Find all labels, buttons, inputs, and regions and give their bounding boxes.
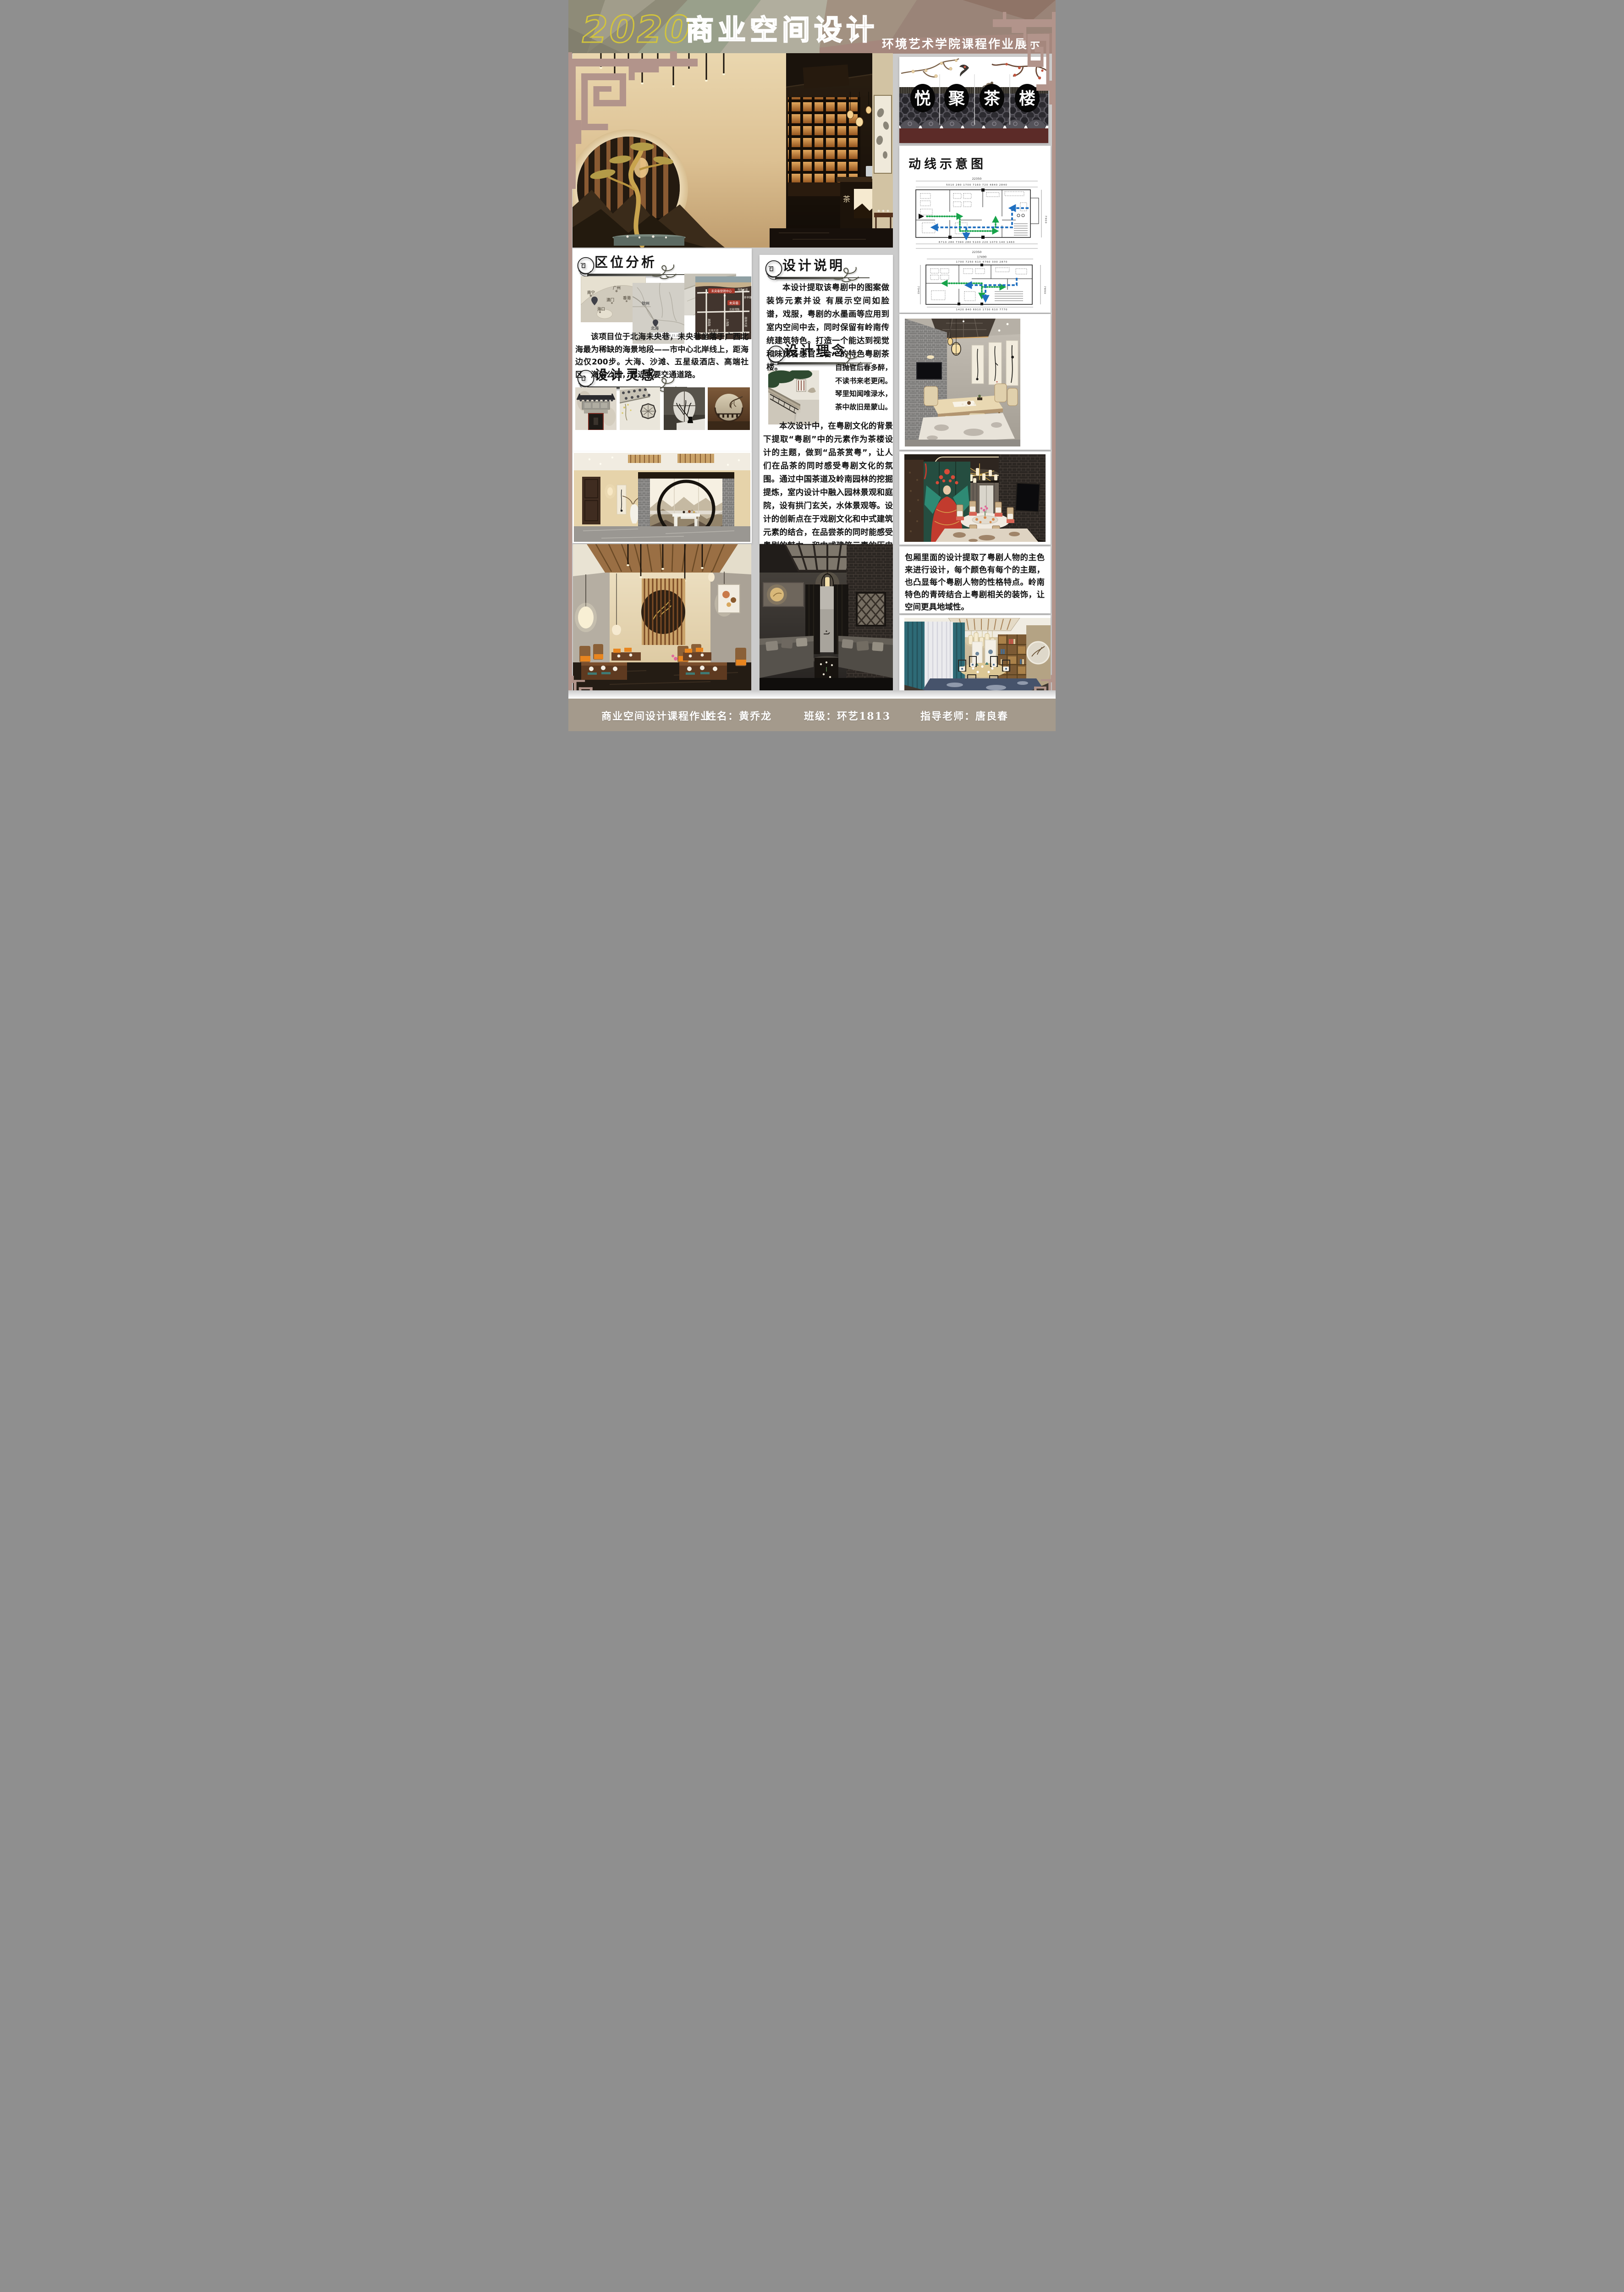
map1-label-guangzhou: 广州 <box>613 286 621 291</box>
lintel <box>638 472 734 479</box>
footer-bar: 商业空间设计课程作业 姓名：黄乔龙 班级：环艺1813 指导老师：唐良春 <box>568 699 1056 731</box>
entry-arrow <box>919 214 924 219</box>
lattice-window <box>857 593 885 626</box>
map4-label-sales-center: 未央巷营销中心 <box>711 289 732 293</box>
footer-glow-band <box>568 690 1056 699</box>
flourish-icon <box>651 263 677 280</box>
marble-floor <box>574 526 750 542</box>
year-title: 2020 <box>582 8 692 51</box>
desk-tea-character: 茶 <box>843 195 850 204</box>
section-design-description: 设计说明 <box>763 255 887 285</box>
map2-label-qinzhou: 钦州 <box>642 301 650 306</box>
map4-road-haijing: 海景大道 <box>738 288 748 292</box>
poem-line: 不读书来老更闲。 <box>835 375 895 388</box>
section-title-location: 区位分析 <box>595 252 657 271</box>
map4-road-shanghai: 上海路 <box>726 319 729 326</box>
concept-garden-photo <box>768 370 819 424</box>
map1-label-macau: 澳门 <box>606 298 614 303</box>
poem-line: 自抛官后春多醉， <box>835 361 895 375</box>
inspiration-moon-gate-photo <box>708 387 750 430</box>
footer-teacher: 指导老师：唐良春 <box>920 708 1008 723</box>
render-moon-arch-hallway <box>574 453 750 542</box>
plan1-dims-bottom: 6710 280 7390 280 5100 220 1070 140 1460 <box>939 241 1015 244</box>
plan1-dim-bottom-total: 22350 <box>972 250 982 254</box>
concept-poem: 自抛官后春多醉， 不读书来老更闲。 琴里知闻唯渌水， 茶中故旧是蒙山。 <box>835 361 895 413</box>
tea-display-shelf <box>788 97 860 182</box>
map4-label-weiyang-lane: 未央巷 <box>729 301 739 305</box>
footer-course: 商业空间设计课程作业 <box>601 708 711 723</box>
brick-pillar <box>638 479 650 534</box>
plan1-dims-top: 5010 280 1700 7160 720 4840 2840 <box>946 184 1007 187</box>
plan2-dims-top: 1700 7250 610 4760 300 2870 <box>956 261 1008 264</box>
plan2-dim-left-total: 7940 <box>917 286 919 294</box>
render-tea-room <box>905 319 1020 446</box>
plan1-dim-right-total: 7900 <box>1044 215 1047 224</box>
wall-tv <box>917 363 941 379</box>
wall-tv <box>1015 483 1040 512</box>
brick-pillar <box>722 479 734 534</box>
plan2-dims-bottom: 1420 840 6910 1730 610 7770 <box>956 309 1008 311</box>
hanging-board <box>803 65 849 89</box>
floor-plan-1: 22350 5010 280 1700 7160 720 4840 2840 6… <box>906 176 1048 255</box>
wall-art-panel <box>874 95 892 173</box>
heading-rule <box>587 274 661 276</box>
food-photo-frame <box>718 584 740 613</box>
page-title: 商业空间设计 <box>686 14 878 46</box>
inspiration-tile-window-photo <box>620 387 660 430</box>
map4-road-nanzhu: 南珠大道 <box>744 317 748 327</box>
lattice-corner-top-right <box>993 12 1056 149</box>
lattice-left-rail <box>568 52 572 704</box>
mountain-mural <box>650 479 722 534</box>
render-dark-lounge <box>760 544 893 693</box>
design-poster: 2020 商业空间设计 环境艺术学院课程作业展示 茶 <box>568 0 1056 731</box>
planter <box>614 237 684 246</box>
poem-line: 琴里知闻唯渌水， <box>835 387 895 401</box>
footer-student-name: 姓名：黄乔龙 <box>706 708 772 723</box>
flourish-icon <box>833 265 859 283</box>
inspiration-oval-window-photo <box>664 387 705 430</box>
logo-char-2: 聚 <box>948 89 965 108</box>
footer-class: 班级：环艺1813 <box>804 708 891 723</box>
private-room-body-text: 包厢里面的设计提取了粤剧人物的主色来进行设计，每个颜色有每个的主题，也凸显每个粤… <box>905 552 1045 614</box>
ink-scrolls <box>972 341 1018 386</box>
map2-label-beihai: 北海 <box>651 326 659 331</box>
vase <box>630 504 639 523</box>
map4-road-beibuwan: 北部湾路 <box>729 308 740 311</box>
render-opera-private-room <box>904 454 1046 542</box>
map4-road-chating: 茶亭路 <box>744 296 751 299</box>
map1-label-hongkong: 香港 <box>622 296 631 301</box>
damask-panel <box>904 460 924 542</box>
section-title-inspiration: 设计灵感 <box>595 364 657 384</box>
plan2-dim-right-total: 7890 <box>1043 286 1046 294</box>
plan1-dim-top-total: 22350 <box>972 177 982 181</box>
logo-char-1: 悦 <box>914 89 931 108</box>
map-weiyang-lane: 未央巷营销中心 未央巷 海景大道 北部湾路 北海大道 茶亭路 上海路 湖南路 南… <box>695 276 751 339</box>
lattice-right-rail <box>1052 12 1056 694</box>
floor-plan-2: 17490 1700 7250 610 4760 300 2870 7940 7… <box>913 255 1050 311</box>
map1-label-haikou: 海口 <box>597 307 605 312</box>
plan2-dim-top-total: 17490 <box>977 255 987 259</box>
screen-moon <box>641 579 685 645</box>
header-banner: 2020 商业空间设计 环境艺术学院课程作业展示 <box>568 0 1056 54</box>
map1-label-nanning: 南宁 <box>587 290 595 295</box>
circulation-title: 动线示意图 <box>908 154 986 172</box>
inspiration-gate-photo <box>575 387 617 430</box>
lattice-corner-top-left <box>568 51 698 189</box>
map4-road-hunan: 湖南路 <box>707 319 711 326</box>
poem-line: 茶中故旧是蒙山。 <box>835 401 895 414</box>
